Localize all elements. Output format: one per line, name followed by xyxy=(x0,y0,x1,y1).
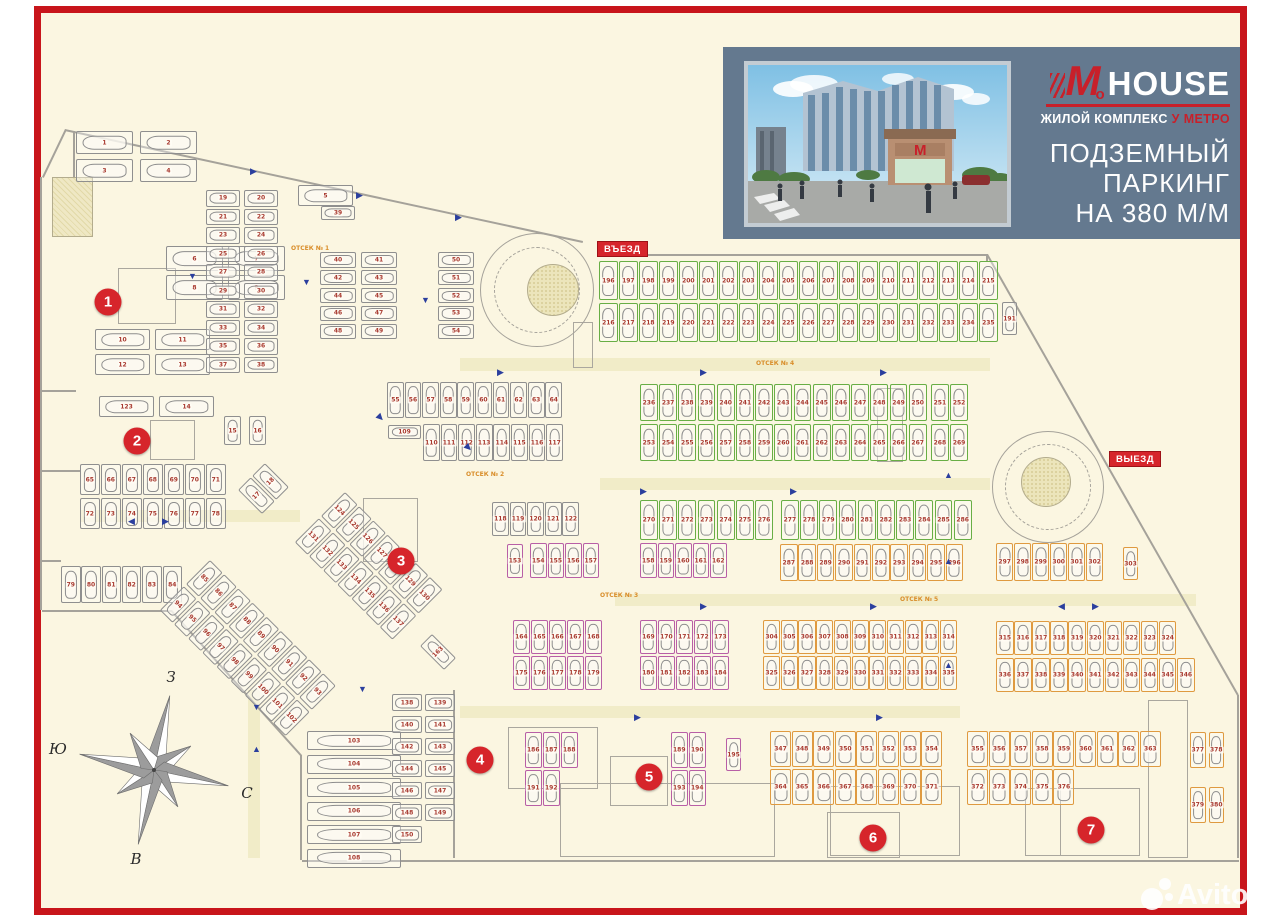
parking-spot-number: 8 xyxy=(191,284,197,291)
parking-spot-number: 319 xyxy=(1070,635,1085,642)
parking-spot: 4 xyxy=(140,159,197,182)
parking-spot-number: 171 xyxy=(677,634,692,641)
parking-spot-number: 212 xyxy=(921,277,936,284)
wall-line xyxy=(74,131,76,183)
parking-spot: 110 xyxy=(423,424,440,461)
parking-spot: 164 xyxy=(513,620,530,654)
parking-spot: 326 xyxy=(781,656,798,690)
parking-spot-number: 146 xyxy=(400,787,415,794)
parking-spot-number: 349 xyxy=(816,746,831,753)
parking-spot-number: 293 xyxy=(892,559,907,566)
parking-spot-number: 357 xyxy=(1013,746,1028,753)
parking-spot: 215 xyxy=(979,261,998,300)
parking-spot-number: 110 xyxy=(424,439,439,446)
parking-spot-number: 218 xyxy=(641,319,656,326)
parking-spot: 123 xyxy=(99,396,154,417)
room-outline xyxy=(150,420,195,460)
parking-spot: 336 xyxy=(996,658,1014,692)
parking-spot-number: 208 xyxy=(841,277,856,284)
parking-spot: 370 xyxy=(900,769,921,805)
parking-spot-number: 51 xyxy=(451,274,461,281)
parking-spot: 149 xyxy=(425,804,455,821)
parking-spot-number: 206 xyxy=(801,277,816,284)
parking-spot-number: 213 xyxy=(941,277,956,284)
parking-spot-number: 27 xyxy=(218,269,228,276)
parking-bank: 55565758596061626364 xyxy=(387,382,563,418)
parking-spot-number: 276 xyxy=(757,517,772,524)
section-label: ОТСЕК № 5 xyxy=(900,596,938,603)
room-outline xyxy=(1148,700,1188,858)
parking-spot-number: 39 xyxy=(333,210,343,217)
parking-spot-number: 154 xyxy=(531,557,546,564)
parking-spot-number: 44 xyxy=(333,292,343,299)
parking-spot-number: 193 xyxy=(672,785,687,792)
parking-spot-number: 336 xyxy=(998,672,1013,679)
parking-spot: 332 xyxy=(887,656,904,690)
parking-spot-number: 256 xyxy=(699,439,714,446)
parking-spot-number: 316 xyxy=(1016,635,1031,642)
parking-spot: 266 xyxy=(890,424,908,461)
parking-spot: 253 xyxy=(640,424,658,461)
parking-spot: 258 xyxy=(736,424,754,461)
parking-spot: 239 xyxy=(698,384,716,421)
parking-spot-number: 73 xyxy=(106,510,116,517)
parking-spot-number: 31 xyxy=(218,306,228,313)
parking-spot-number: 66 xyxy=(106,476,116,483)
parking-spot: 68 xyxy=(143,464,163,495)
parking-bank: 164165166167168175176177178179 xyxy=(513,620,603,692)
parking-spot: 14 xyxy=(159,396,214,417)
parking-spot-number: 284 xyxy=(917,517,932,524)
parking-spot: 352 xyxy=(878,731,899,767)
parking-spot-number: 328 xyxy=(817,670,832,677)
parking-spot: 362 xyxy=(1118,731,1139,767)
parking-spot-number: 43 xyxy=(374,274,384,281)
parking-spot-number: 57 xyxy=(425,397,435,404)
parking-spot: 146 xyxy=(392,782,422,799)
parking-spot-number: 345 xyxy=(1160,672,1175,679)
parking-spot-number: 197 xyxy=(621,277,636,284)
parking-spot-number: 330 xyxy=(853,670,868,677)
parking-spot: 178 xyxy=(567,656,584,690)
parking-spot-number: 299 xyxy=(1033,559,1048,566)
parking-bank: 103104105106107108 xyxy=(307,731,401,872)
parking-spot-number: 311 xyxy=(888,634,903,641)
parking-spot-number: 235 xyxy=(981,319,996,326)
parking-spot-number: 273 xyxy=(699,517,714,524)
parking-bank: 270271272273274275276 xyxy=(640,500,774,540)
parking-spot-number: 144 xyxy=(400,765,415,772)
parking-spot-number: 147 xyxy=(433,787,448,794)
direction-arrow: ▶ xyxy=(250,167,257,176)
parking-spot: 143 xyxy=(425,738,455,755)
section-label: ОТСЕК № 4 xyxy=(756,360,794,367)
zone-marker: 2 xyxy=(124,428,151,455)
parking-spot: 360 xyxy=(1075,731,1096,767)
parking-spot-number: 236 xyxy=(642,399,657,406)
parking-spot-number: 116 xyxy=(530,439,545,446)
parking-bank: 377378 xyxy=(1190,732,1227,768)
parking-spot-number: 138 xyxy=(400,699,415,706)
parking-spot: 219 xyxy=(659,303,678,342)
svg-text:М: М xyxy=(914,142,927,159)
parking-spot-number: 219 xyxy=(661,319,676,326)
parking-spot: 277 xyxy=(781,500,799,540)
zone-marker: 3 xyxy=(388,548,415,575)
parking-spot-number: 207 xyxy=(821,277,836,284)
parking-spot: 317 xyxy=(1032,621,1050,655)
parking-spot: 241 xyxy=(736,384,754,421)
zone-marker: 4 xyxy=(467,747,494,774)
parking-spot: 58 xyxy=(440,382,457,418)
parking-spot: 319 xyxy=(1068,621,1086,655)
parking-bank: 303 xyxy=(1123,547,1138,580)
wall-line xyxy=(599,254,988,256)
parking-spot: 316 xyxy=(1014,621,1032,655)
parking-spot: 329 xyxy=(834,656,851,690)
parking-spot: 229 xyxy=(859,303,878,342)
parking-spot: 321 xyxy=(1105,621,1123,655)
parking-spot: 39 xyxy=(321,206,355,220)
parking-spot-number: 254 xyxy=(661,439,676,446)
parking-spot-number: 238 xyxy=(680,399,695,406)
parking-spot-number: 262 xyxy=(814,439,829,446)
parking-spot: 108 xyxy=(307,849,401,868)
parking-spot: 364 xyxy=(770,769,791,805)
parking-spot-number: 308 xyxy=(835,634,850,641)
parking-spot-number: 232 xyxy=(921,319,936,326)
parking-spot-number: 81 xyxy=(106,581,116,588)
parking-spot-number: 214 xyxy=(961,277,976,284)
parking-spot-number: 103 xyxy=(347,737,362,744)
parking-spot-number: 320 xyxy=(1088,635,1103,642)
parking-spot: 351 xyxy=(856,731,877,767)
direction-arrow: ▶ xyxy=(876,713,883,722)
direction-arrow: ▶ xyxy=(640,487,647,496)
parking-spot: 327 xyxy=(798,656,815,690)
brand-block: MoHOUSE ЖИЛОЙ КОМПЛЕКС У МЕТРО ПОДЗЕМНЫЙ… xyxy=(1012,63,1230,228)
direction-arrow: ▼ xyxy=(252,703,261,712)
parking-spot-number: 247 xyxy=(853,399,868,406)
parking-spot-number: 339 xyxy=(1052,672,1067,679)
parking-spot-number: 150 xyxy=(400,831,415,838)
parking-spot: 304 xyxy=(763,620,780,654)
parking-bank: 186187188191192 xyxy=(525,732,579,808)
parking-spot: 193 xyxy=(671,770,688,806)
parking-spot: 118 xyxy=(492,502,509,536)
parking-spot: 32 xyxy=(244,301,278,318)
parking-spot: 51 xyxy=(438,270,474,286)
parking-spot-number: 380 xyxy=(1209,802,1224,809)
parking-spot-number: 69 xyxy=(169,476,179,483)
parking-spot: 175 xyxy=(513,656,530,690)
parking-spot-number: 62 xyxy=(513,397,523,404)
parking-spot-number: 278 xyxy=(802,517,817,524)
parking-spot: 63 xyxy=(528,382,545,418)
parking-spot: 122 xyxy=(562,502,579,536)
parking-spot-number: 175 xyxy=(514,670,529,677)
parking-spot-number: 139 xyxy=(433,699,448,706)
parking-spot: 311 xyxy=(887,620,904,654)
parking-spot-number: 335 xyxy=(941,670,956,677)
parking-spot-number: 119 xyxy=(511,516,526,523)
parking-spot-number: 115 xyxy=(512,439,527,446)
parking-spot: 103 xyxy=(307,731,401,750)
parking-spot: 192 xyxy=(543,770,560,806)
parking-spot: 5 xyxy=(298,185,353,206)
banner-title-line2: ПАРКИНГ xyxy=(1012,168,1230,198)
parking-spot: 116 xyxy=(529,424,546,461)
parking-spot: 223 xyxy=(739,303,758,342)
parking-spot: 262 xyxy=(813,424,831,461)
parking-spot: 194 xyxy=(689,770,706,806)
complex-photo: М xyxy=(744,61,1011,227)
parking-spot-number: 191 xyxy=(1002,315,1017,322)
parking-spot-number: 109 xyxy=(397,429,412,436)
parking-spot-number: 195 xyxy=(726,751,741,758)
parking-spot-number: 363 xyxy=(1143,746,1158,753)
parking-spot: 177 xyxy=(549,656,566,690)
parking-spot: 31 xyxy=(206,301,240,318)
parking-spot: 79 xyxy=(61,566,81,603)
promo-banner: М MoHOUSE ЖИЛОЙ КОМПЛЕКС У МЕТРО xyxy=(723,47,1240,239)
parking-spot-number: 153 xyxy=(508,558,523,565)
parking-spot: 165 xyxy=(531,620,548,654)
parking-spot-number: 19 xyxy=(218,195,228,202)
parking-spot-number: 252 xyxy=(952,399,967,406)
parking-spot-number: 201 xyxy=(701,277,716,284)
parking-spot-number: 323 xyxy=(1142,635,1157,642)
parking-spot-number: 15 xyxy=(227,427,237,434)
parking-bank: 251252268269 xyxy=(931,384,969,464)
parking-spot: 297 xyxy=(996,543,1013,581)
parking-spot-number: 35 xyxy=(218,343,228,350)
parking-spot-number: 226 xyxy=(801,319,816,326)
parking-spot: 356 xyxy=(989,731,1010,767)
direction-arrow: ▶ xyxy=(700,602,707,611)
entrance-label: ВЪЕЗД xyxy=(597,241,648,257)
parking-spot-number: 140 xyxy=(400,721,415,728)
parking-spot: 105 xyxy=(307,778,401,797)
parking-spot-number: 14 xyxy=(181,403,191,410)
parking-spot: 198 xyxy=(639,261,658,300)
parking-spot-number: 314 xyxy=(941,634,956,641)
parking-spot-number: 210 xyxy=(881,277,896,284)
poster-page: 1234567891011121312314192021222324252627… xyxy=(0,0,1280,922)
parking-spot-number: 326 xyxy=(782,670,797,677)
wall-line xyxy=(41,177,43,610)
parking-spot-number: 377 xyxy=(1190,747,1205,754)
parking-spot: 291 xyxy=(854,544,872,581)
parking-spot: 25 xyxy=(206,246,240,263)
parking-spot-number: 148 xyxy=(400,809,415,816)
parking-spot-number: 344 xyxy=(1142,672,1157,679)
parking-spot-number: 30 xyxy=(256,287,266,294)
parking-spot-number: 356 xyxy=(992,746,1007,753)
parking-spot-number: 183 xyxy=(695,670,710,677)
parking-spot: 47 xyxy=(361,306,397,322)
parking-spot-number: 358 xyxy=(1035,746,1050,753)
parking-spot: 235 xyxy=(979,303,998,342)
room-outline xyxy=(560,783,775,857)
parking-spot-number: 297 xyxy=(997,559,1012,566)
parking-spot: 166 xyxy=(549,620,566,654)
parking-spot: 233 xyxy=(939,303,958,342)
parking-spot-number: 142 xyxy=(400,743,415,750)
parking-spot-number: 4 xyxy=(165,167,171,174)
parking-spot-number: 11 xyxy=(177,336,187,343)
parking-spot: 344 xyxy=(1141,658,1159,692)
parking-spot-number: 301 xyxy=(1069,559,1084,566)
parking-spot: 282 xyxy=(877,500,895,540)
parking-spot-number: 156 xyxy=(566,557,581,564)
parking-spot-number: 269 xyxy=(952,439,967,446)
parking-bank: 153 xyxy=(507,544,523,578)
parking-spot: 274 xyxy=(717,500,735,540)
parking-spot-number: 104 xyxy=(347,761,362,768)
parking-spot: 55 xyxy=(387,382,404,418)
parking-spot-number: 161 xyxy=(693,557,708,564)
parking-spot: 29 xyxy=(206,283,240,300)
parking-spot: 271 xyxy=(659,500,677,540)
parking-spot: 206 xyxy=(799,261,818,300)
parking-spot-number: 375 xyxy=(1035,784,1050,791)
parking-spot: 52 xyxy=(438,288,474,304)
parking-spot: 288 xyxy=(798,544,816,581)
parking-spot-number: 167 xyxy=(568,634,583,641)
parking-spot-number: 309 xyxy=(853,634,868,641)
parking-spot: 224 xyxy=(759,303,778,342)
parking-spot-number: 374 xyxy=(1013,784,1028,791)
parking-spot-number: 322 xyxy=(1124,635,1139,642)
parking-spot-number: 78 xyxy=(211,510,221,517)
parking-spot-number: 5 xyxy=(322,192,328,199)
parking-spot: 158 xyxy=(640,543,657,578)
parking-spot: 334 xyxy=(922,656,939,690)
parking-spot-number: 229 xyxy=(861,319,876,326)
parking-spot: 156 xyxy=(565,543,582,578)
parking-spot-number: 334 xyxy=(924,670,939,677)
parking-spot: 286 xyxy=(954,500,972,540)
parking-spot: 54 xyxy=(438,324,474,340)
parking-spot: 237 xyxy=(659,384,677,421)
parking-spot-number: 241 xyxy=(738,399,753,406)
parking-spot: 318 xyxy=(1050,621,1068,655)
parking-spot-number: 288 xyxy=(800,559,815,566)
parking-spot-number: 211 xyxy=(901,277,916,284)
parking-spot-number: 184 xyxy=(713,670,728,677)
parking-spot: 290 xyxy=(835,544,853,581)
parking-spot-number: 25 xyxy=(218,250,228,257)
direction-arrow: ▶ xyxy=(880,368,887,377)
parking-spot-number: 248 xyxy=(872,399,887,406)
parking-spot-number: 261 xyxy=(795,439,810,446)
parking-spot-number: 204 xyxy=(761,277,776,284)
parking-spot: 371 xyxy=(921,769,942,805)
parking-spot: 380 xyxy=(1209,787,1225,823)
parking-spot: 114 xyxy=(493,424,510,461)
parking-spot: 40 xyxy=(320,252,356,268)
parking-spot: 26 xyxy=(244,246,278,263)
parking-spot: 83 xyxy=(142,566,162,603)
parking-spot-number: 225 xyxy=(781,319,796,326)
parking-bank: 118119120121122 xyxy=(492,502,580,536)
parking-spot: 354 xyxy=(921,731,942,767)
parking-spot-number: 12 xyxy=(117,361,127,368)
parking-spot-number: 46 xyxy=(333,310,343,317)
parking-spot-number: 79 xyxy=(66,581,76,588)
zone-marker: 7 xyxy=(1078,817,1105,844)
parking-bank: 195 xyxy=(726,738,741,771)
parking-spot-number: 141 xyxy=(433,721,448,728)
logo-slashes-icon xyxy=(1050,73,1065,98)
direction-arrow: ▶ xyxy=(870,602,877,611)
parking-spot: 1 xyxy=(76,131,133,154)
parking-spot: 267 xyxy=(909,424,927,461)
parking-spot-number: 13 xyxy=(177,361,187,368)
parking-spot: 243 xyxy=(774,384,792,421)
parking-spot-number: 257 xyxy=(718,439,733,446)
parking-spot: 30 xyxy=(244,283,278,300)
logo-o: o xyxy=(1095,86,1104,103)
parking-spot: 212 xyxy=(919,261,938,300)
parking-spot: 323 xyxy=(1141,621,1159,655)
parking-spot-number: 359 xyxy=(1057,746,1072,753)
parking-spot-number: 281 xyxy=(859,517,874,524)
parking-spot: 222 xyxy=(719,303,738,342)
parking-spot: 240 xyxy=(717,384,735,421)
parking-spot: 3 xyxy=(76,159,133,182)
parking-spot: 183 xyxy=(694,656,711,690)
parking-spot-number: 3 xyxy=(101,167,107,174)
parking-spot: 248 xyxy=(870,384,888,421)
parking-spot: 342 xyxy=(1105,658,1123,692)
parking-spot: 305 xyxy=(781,620,798,654)
parking-spot: 46 xyxy=(320,306,356,322)
parking-spot-number: 71 xyxy=(211,476,221,483)
parking-spot: 191 xyxy=(525,770,542,806)
parking-spot-number: 221 xyxy=(701,319,716,326)
parking-bank: 3043053063073083093103113123133143253263… xyxy=(763,620,958,692)
direction-arrow: ▶ xyxy=(634,713,641,722)
parking-bank: 154155156157 xyxy=(530,543,600,578)
parking-bank: 110111112113114115116117 xyxy=(423,424,564,461)
parking-spot: 328 xyxy=(816,656,833,690)
parking-spot: 202 xyxy=(719,261,738,300)
parking-bank: 12314 xyxy=(99,396,219,417)
parking-spot: 245 xyxy=(813,384,831,421)
parking-spot: 21 xyxy=(206,209,240,226)
parking-spot-number: 49 xyxy=(374,328,384,335)
parking-spot-number: 6 xyxy=(191,255,197,262)
avito-logo-icon xyxy=(1159,878,1171,890)
parking-spot-number: 113 xyxy=(477,439,492,446)
parking-spot-number: 237 xyxy=(661,399,676,406)
parking-bank: 138139140141142143144145146147148149150 xyxy=(392,694,458,848)
parking-spot-number: 181 xyxy=(659,670,674,677)
parking-spot: 289 xyxy=(817,544,835,581)
wall-line xyxy=(42,129,66,178)
parking-spot: 195 xyxy=(726,738,741,771)
parking-spot-number: 108 xyxy=(347,855,362,862)
parking-spot-number: 245 xyxy=(814,399,829,406)
parking-spot: 265 xyxy=(870,424,888,461)
parking-bank: 191 xyxy=(1002,302,1017,335)
parking-spot-number: 170 xyxy=(659,634,674,641)
parking-spot-number: 379 xyxy=(1190,802,1205,809)
parking-spot-number: 56 xyxy=(408,397,418,404)
parking-spot: 22 xyxy=(244,209,278,226)
